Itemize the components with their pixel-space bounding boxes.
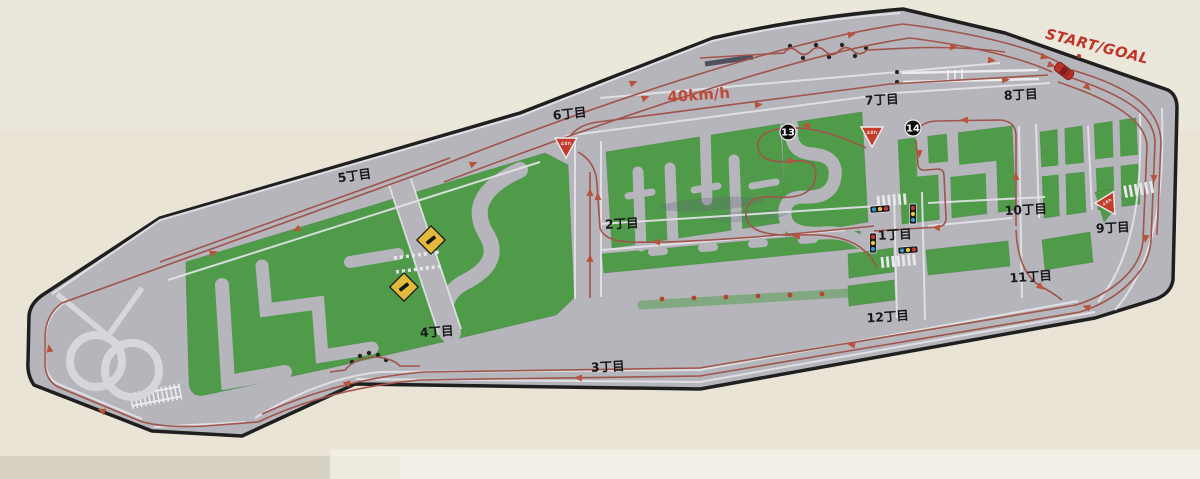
traffic-light xyxy=(898,246,918,254)
traffic-light xyxy=(910,204,917,224)
start-dot xyxy=(1077,54,1081,58)
stop-sign-text: 止まれ xyxy=(561,141,572,146)
stop-sign-text: 止まれ xyxy=(867,130,878,135)
district-label-12chome: 12丁目 xyxy=(866,308,909,326)
district-label-2chome: 2丁目 xyxy=(605,215,639,232)
checkpoint-13-marker: 13 xyxy=(780,124,796,140)
district-label-9chome: 9丁目 xyxy=(1096,219,1130,236)
district-label-7chome: 7丁目 xyxy=(865,91,899,108)
district-label-1chome: 1丁目 xyxy=(878,226,912,243)
checkpoint-14-number: 14 xyxy=(906,123,920,134)
district-label-3chome: 3丁目 xyxy=(591,358,625,375)
traffic-light xyxy=(870,205,890,213)
district-label-8chome: 8丁目 xyxy=(1004,86,1038,103)
checkpoint-14-marker: 14 xyxy=(905,120,921,136)
checkpoint-13-number: 13 xyxy=(781,127,795,138)
course-map: 止まれ 止まれ 止まれ 13 14 xyxy=(0,0,1200,479)
district-label-10chome: 10丁目 xyxy=(1004,201,1047,218)
district-label-11chome: 11丁目 xyxy=(1009,268,1052,286)
course-map-photo: 止まれ 止まれ 止まれ 13 14 xyxy=(0,0,1200,479)
traffic-light xyxy=(870,233,877,253)
district-label-4chome: 4丁目 xyxy=(419,323,454,340)
